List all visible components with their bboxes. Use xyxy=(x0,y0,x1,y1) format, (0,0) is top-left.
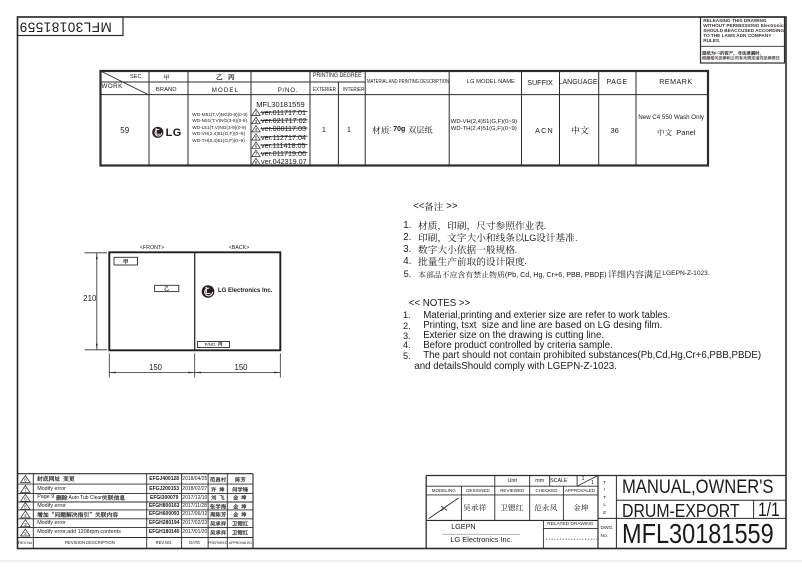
svg-text:2: 2 xyxy=(255,111,258,116)
svg-text:3: 3 xyxy=(24,522,27,527)
svg-text:4: 4 xyxy=(255,127,258,132)
svg-text:8: 8 xyxy=(24,478,27,483)
svg-text:7: 7 xyxy=(255,152,258,157)
svg-text:2: 2 xyxy=(24,531,27,536)
svg-text:5: 5 xyxy=(24,505,27,510)
svg-text:6: 6 xyxy=(255,144,258,149)
svg-text:4: 4 xyxy=(24,513,27,518)
svg-text:7: 7 xyxy=(24,488,27,493)
svg-text:3: 3 xyxy=(255,119,258,124)
svg-text:6: 6 xyxy=(24,497,27,502)
svg-text:5: 5 xyxy=(255,135,258,140)
svg-text:8: 8 xyxy=(255,160,258,165)
